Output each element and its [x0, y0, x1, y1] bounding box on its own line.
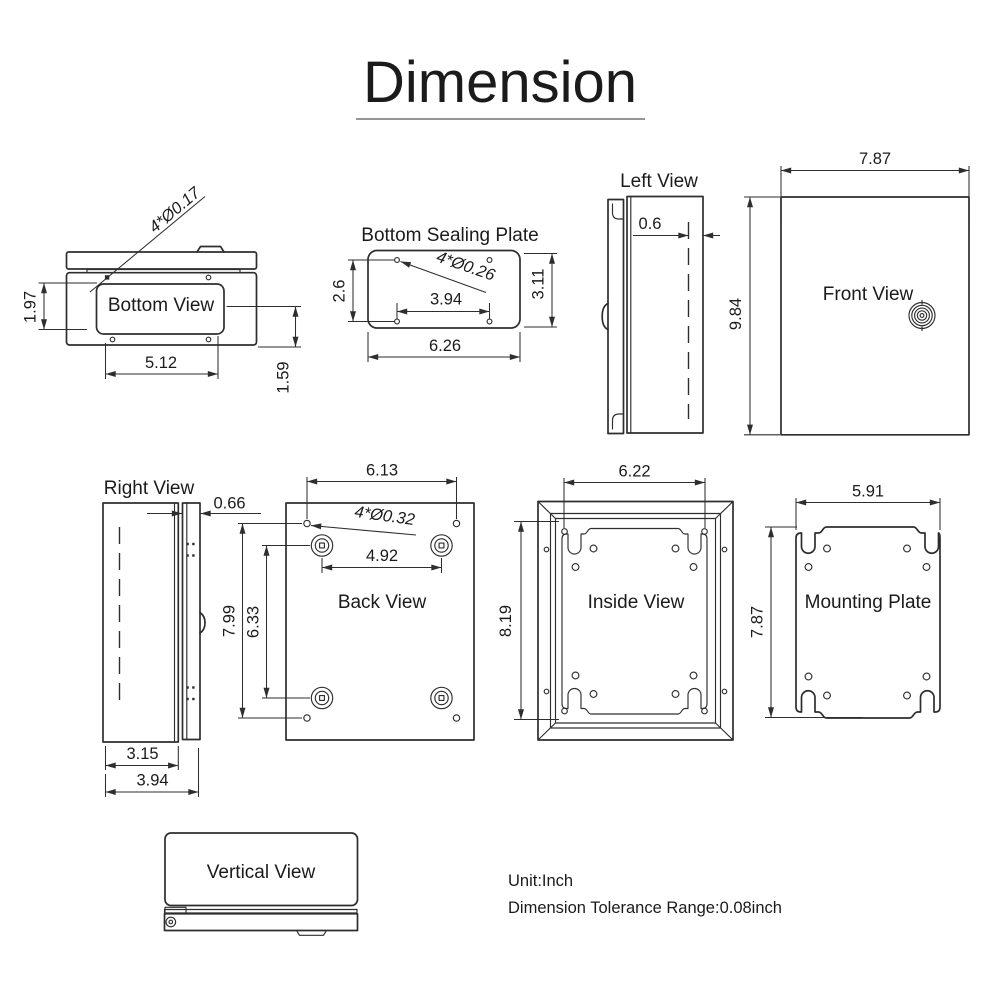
dim-value: 6.13: [366, 462, 398, 480]
frame-miter: [538, 502, 556, 519]
bottom-sealing-plate: Bottom Sealing Plate 4*Ø0.26 2.6 3.11 3.…: [331, 225, 558, 362]
dim-width: 6.26: [368, 332, 520, 362]
dim-boss-spacing-h: 4.92: [322, 547, 442, 573]
boss: [431, 687, 452, 708]
frame-hole: [544, 547, 549, 552]
hinge-dot: [186, 554, 188, 556]
dim-width: 7.87: [781, 150, 969, 225]
dim-value: 3.94: [430, 291, 462, 309]
boss-square: [439, 543, 444, 548]
hole: [304, 715, 310, 721]
door-hook-bottom: [613, 414, 624, 429]
plate-hole: [590, 691, 597, 698]
boss: [435, 539, 448, 552]
dim-value: 8.19: [497, 605, 515, 637]
boss: [311, 535, 332, 556]
dim-hole-spacing-v: 2.6: [331, 260, 395, 322]
dimension-drawing: Dimension 4*Ø0.17 Bottom View 1.97 5.12: [0, 0, 1000, 1000]
frame-middle: [551, 514, 721, 729]
dim-value: 1.97: [22, 291, 40, 323]
title-group: Dimension: [356, 50, 645, 119]
dim-value: 2.6: [331, 280, 349, 303]
hinge-marks: [186, 543, 194, 700]
boss: [431, 535, 452, 556]
lock-ring: [909, 303, 935, 329]
view-label: Back View: [338, 592, 427, 613]
view-label: Inside View: [588, 592, 685, 613]
tolerance-note: Dimension Tolerance Range:0.08inch: [508, 899, 782, 917]
hole: [453, 520, 459, 526]
lock-ring: [917, 311, 926, 320]
hinge-dot: [192, 698, 194, 700]
door-hook-top: [613, 204, 624, 219]
dim-plate-height: 1.97: [22, 283, 98, 330]
frame-outer: [538, 502, 733, 741]
dim-height: 7.87: [749, 527, 864, 718]
dim-height: 9.84: [727, 197, 780, 435]
frame-hole: [544, 689, 549, 694]
hole-note: 4*Ø0.32: [353, 503, 415, 529]
frame-hole: [722, 547, 727, 552]
inside-view: Inside View 6.22 8.19: [497, 463, 733, 741]
mounting-plate: Mounting Plate 5.91 7.87: [749, 483, 941, 719]
vertical-view: Vertical View: [165, 833, 358, 935]
dim-height: 8.19: [497, 522, 559, 720]
dim-plate-width: 5.12: [106, 336, 219, 379]
plate-hole: [572, 672, 579, 679]
view-label: Mounting Plate: [805, 592, 932, 613]
view-label: Right View: [104, 478, 195, 499]
right-view-door: [183, 503, 201, 740]
hole-note: 4*Ø0.26: [434, 248, 498, 285]
inner-mounting-plate-outline: [562, 529, 707, 715]
plate-hole: [923, 564, 930, 571]
view-label: Bottom Sealing Plate: [361, 225, 538, 246]
dim-boss-spacing-v: 6.33: [245, 546, 311, 699]
hole: [304, 520, 310, 526]
dim-value: 3.94: [136, 772, 168, 790]
plate-hole: [824, 545, 831, 552]
hinge-pin-center: [169, 920, 173, 924]
boss-square: [439, 696, 444, 701]
dim-value: 3.11: [530, 269, 548, 300]
view-label: Vertical View: [207, 862, 316, 883]
mounting-plate-outline: [796, 527, 940, 718]
plate-hole: [572, 564, 579, 571]
dim-value: 3.15: [126, 745, 158, 763]
dim-value: 7.87: [859, 150, 891, 168]
hole: [453, 715, 459, 721]
plate-hole: [923, 673, 930, 680]
corner-hole: [702, 529, 708, 535]
hole: [487, 319, 492, 324]
frame-miter: [716, 723, 734, 740]
plate-hole: [824, 692, 831, 699]
hole: [206, 337, 211, 342]
dim-value: 5.12: [145, 354, 177, 372]
lock-icon: [909, 301, 935, 331]
dim-value: 0.6: [639, 215, 662, 233]
view-label: Front View: [823, 284, 914, 305]
boss-square: [320, 543, 325, 548]
hinge-dot: [192, 686, 194, 688]
plate-hole: [690, 564, 697, 571]
plate-hole: [805, 564, 812, 571]
boss: [315, 539, 328, 552]
footer-notes: Unit:Inch Dimension Tolerance Range:0.08…: [508, 872, 782, 917]
back-view: Back View 4*Ø0.32 6.13 4.92 7.99 6.33: [221, 462, 475, 741]
dim-offset: 1.59: [227, 307, 302, 394]
dim-wall-offset: 0.6: [633, 215, 720, 236]
front-view-panel: [781, 197, 969, 435]
unit-note: Unit:Inch: [508, 872, 573, 890]
dim-value: 7.99: [221, 605, 239, 637]
hinge-dot: [192, 543, 194, 545]
boss: [311, 687, 332, 708]
vertical-view-door: [165, 914, 358, 931]
frame-miter: [538, 723, 556, 740]
hinge-dot: [186, 686, 188, 688]
frame-hole: [722, 689, 727, 694]
view-label: Left View: [620, 171, 698, 192]
bottom-view: 4*Ø0.17 Bottom View 1.97 5.12 1.59: [22, 183, 302, 393]
plate-hole: [904, 692, 911, 699]
left-view: Left View 0.6: [602, 171, 720, 434]
corner-hole: [702, 708, 708, 714]
plate-hole: [672, 545, 679, 552]
hinge-dot: [186, 543, 188, 545]
view-label: Bottom View: [108, 295, 215, 316]
frame-miter: [716, 502, 734, 519]
front-view: Front View 7.87 9.84: [727, 150, 969, 435]
dim-height: 3.11: [524, 254, 557, 328]
hinge-bump: [602, 304, 608, 330]
dim-value: 0.66: [213, 495, 245, 513]
left-view-door: [608, 200, 624, 434]
dim-value: 6.26: [429, 337, 461, 355]
hole: [206, 275, 211, 280]
dim-hole-spacing-h: 3.94: [397, 291, 490, 320]
dim-value: 1.59: [275, 361, 293, 393]
plate-hole: [590, 545, 597, 552]
hole: [395, 258, 400, 263]
dim-value: 6.33: [245, 606, 263, 638]
hinge-dot: [192, 554, 194, 556]
dim-value: 9.84: [727, 298, 745, 330]
frame-inner: [556, 519, 716, 724]
corner-hole: [562, 529, 568, 535]
lock-center: [920, 314, 924, 318]
boss-square: [320, 696, 325, 701]
plate-hole: [690, 672, 697, 679]
dim-value: 7.87: [749, 606, 767, 638]
gasket-strip: [165, 910, 358, 913]
plate-hole: [904, 545, 911, 552]
dim-width: 5.91: [796, 483, 940, 531]
hole: [487, 258, 492, 263]
corner-hole: [562, 708, 568, 714]
boss: [435, 691, 448, 704]
hole-note: 4*Ø0.17: [146, 183, 205, 236]
hinge-pin: [166, 917, 176, 927]
dim-value: 5.91: [852, 483, 884, 501]
dim-value: 6.22: [618, 463, 650, 481]
hole: [395, 319, 400, 324]
page-title: Dimension: [363, 50, 637, 115]
dim-value: 4.92: [366, 547, 398, 565]
plate-hole: [805, 673, 812, 680]
hinge-dot: [186, 698, 188, 700]
right-view-body: [103, 503, 178, 742]
hole: [110, 337, 115, 342]
dim-body-depth: 3.15: [106, 745, 179, 770]
boss: [315, 691, 328, 704]
bottom-view-lid: [67, 252, 257, 269]
plate-hole: [672, 691, 679, 698]
